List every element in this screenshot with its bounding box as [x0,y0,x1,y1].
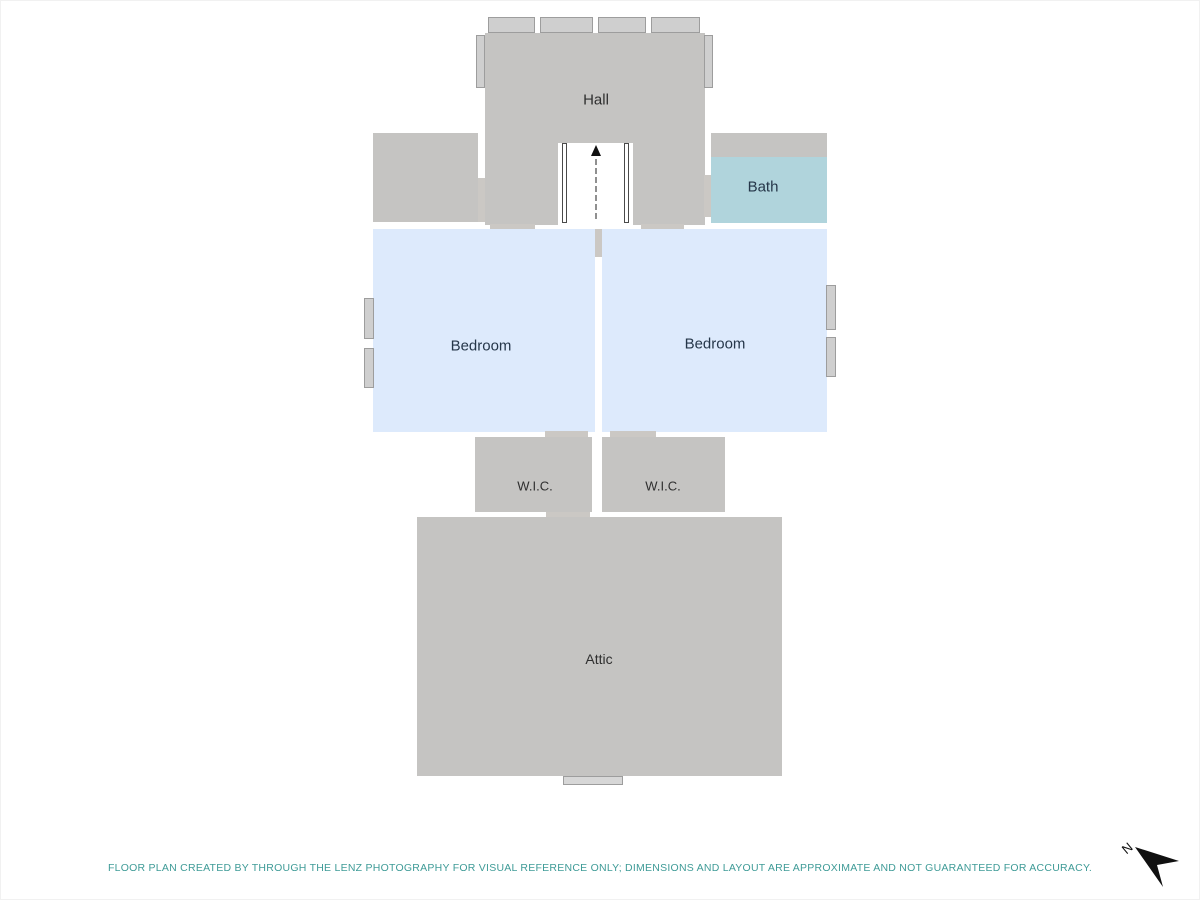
stair-direction-arrow [558,143,633,225]
disclaimer-text: FLOOR PLAN CREATED BY THROUGH THE LENZ P… [0,862,1200,874]
room-label-bedroom-right: Bedroom [685,336,746,353]
compass-letter: N [1119,839,1136,857]
window-divider [645,17,652,33]
room-attic: Attic [417,517,782,776]
hall-left-window [476,35,485,88]
staircase [558,143,633,225]
room-label-hall: Hall [583,92,609,109]
right-wall-connector [704,175,711,217]
floor-plan-page: Hall Bath Bedroom Bedroom W.I.C. [0,0,1200,900]
room-label-bedroom-left: Bedroom [451,338,512,355]
bedroom-left-window-upper [364,298,374,339]
left-roof-space [373,133,478,222]
room-label-wic-left: W.I.C. [517,479,552,494]
window-divider [592,17,599,33]
room-bath: Bath [711,157,827,223]
bath-top-strip [711,133,827,157]
bedroom-left-window-lower [364,348,374,388]
room-wic-left: W.I.C. [475,437,592,512]
hall-top-window [488,17,700,33]
left-wall-connector [478,178,485,222]
room-label-bath: Bath [748,179,779,196]
room-bedroom-left: Bedroom [373,229,595,432]
window-divider [534,17,541,33]
hall-right-window [704,35,713,88]
room-wic-right: W.I.C. [602,437,725,512]
bedroom-right-window-lower [826,337,836,377]
room-label-attic: Attic [585,651,612,667]
attic-bottom-window [563,776,623,785]
room-label-wic-right: W.I.C. [645,479,680,494]
bedroom-right-window-upper [826,285,836,330]
room-bedroom-right: Bedroom [602,229,827,432]
